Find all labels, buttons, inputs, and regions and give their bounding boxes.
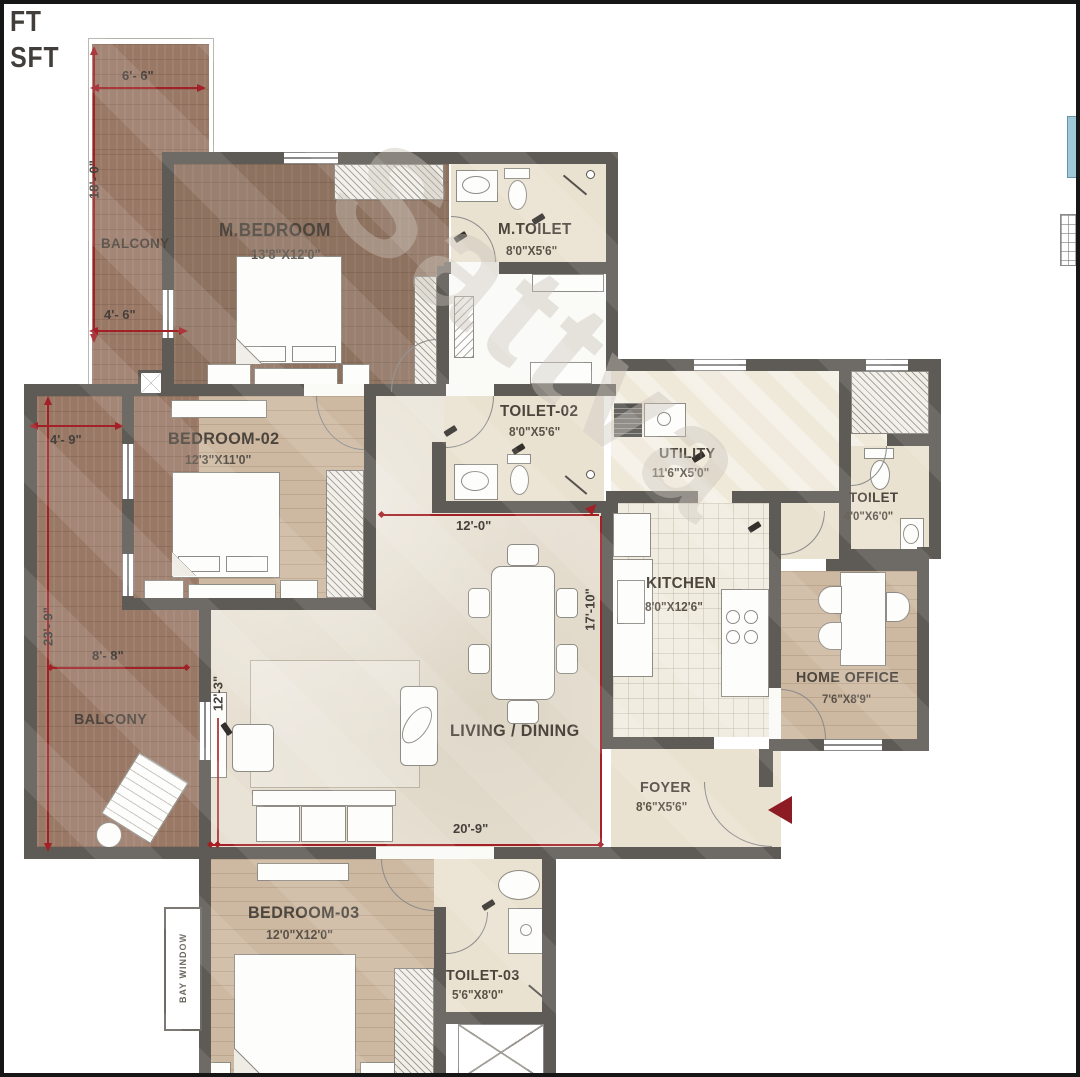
desk [840,572,886,666]
wall [929,359,941,559]
dining-chair [556,644,578,674]
nightstand [209,1062,231,1077]
hob-burner [744,630,758,644]
wall [732,491,839,503]
door-opening [446,384,494,396]
wall [122,598,376,610]
kitchen-sink [617,580,645,624]
room-label-home-office: HOME OFFICE [796,669,899,686]
room-label-balcony-left: BALCONY [74,711,147,728]
wall [434,907,446,1021]
dresser [171,400,267,418]
wc-bowl [508,180,527,210]
room-size-kitchen: 8'0"X12'6" [645,600,703,614]
room-size-home-office: 7'6"X8'9" [822,692,871,706]
dim-arrow [44,396,52,405]
door-opening [304,384,364,396]
window [122,444,134,499]
room-label-m-bedroom: M.BEDROOM [219,220,331,241]
dim-label: 4'- 9" [50,432,82,447]
dim-label: 12'-3" [211,666,226,722]
area-text-line1: FT [10,6,42,39]
room-label-foyer: FOYER [640,779,691,796]
wall [769,503,781,688]
wardrobe [334,164,444,200]
sliding-door [199,702,211,760]
sofa-back [252,790,396,806]
wall [542,859,556,1024]
wall [839,434,851,446]
dim-arrow [115,422,124,430]
dim-line [600,516,602,845]
wall [917,559,929,751]
room-size-bedroom-03: 12'0"X12'0" [266,927,333,942]
blanket-fold [234,1048,260,1074]
dim-label: 17'-10" [583,580,598,640]
area-text: FT 8 SFT [4,4,134,96]
dining-chair [468,588,490,618]
wall [432,442,446,501]
room-label-balcony-top: BALCONY [101,235,169,251]
blanket-fold [236,338,262,364]
dim-label: 12'-0" [456,518,491,533]
room-size-toilet: 4'0"X6'0" [844,509,893,523]
room-label-m-toilet: M.TOILET [498,221,572,239]
wall [364,396,376,598]
sofa-seat [301,806,346,842]
wall [601,513,613,749]
closet [454,296,474,358]
room-label-toilet-02: TOILET-02 [500,403,578,421]
keyplan-fragment-grid [1060,214,1080,266]
dim-line [52,667,186,669]
dim-arrow [197,84,206,92]
dim-arrow [44,843,52,852]
shower-drain [520,924,532,936]
door-opening [376,847,494,859]
dim-label: 23'- 9" [41,597,56,657]
sink-bowl [657,412,671,426]
wall [826,559,929,571]
room-label-utility: UTILITY [659,445,715,462]
dining-chair [556,588,578,618]
keyplan-fragment-blue [1067,116,1080,178]
dining-table [491,566,555,700]
chair [818,622,842,650]
window [284,152,338,164]
room-size-bedroom-02: 12'3"X11'0" [185,452,251,467]
washbasin-bowl [498,870,540,900]
window [122,554,134,596]
dim-label: 4'- 6" [104,307,136,322]
wall [162,152,618,164]
cabinet [530,362,592,384]
dining-chair [507,544,539,566]
dresser [257,863,349,881]
wall [606,491,698,503]
dim-line [96,330,180,332]
shaft [458,1024,544,1077]
room-label-toilet: TOILET [849,489,898,505]
dim-arrow [179,327,188,335]
sofa-seat [347,806,393,842]
door-opening [769,688,781,739]
bay-window: BAY WINDOW [164,907,202,1031]
kitchen-counter [721,589,769,697]
hob-burner [726,610,740,624]
chair [818,586,842,614]
armchair [232,724,274,772]
window [866,359,908,371]
room-size-m-toilet: 8'0"X5'6" [506,244,557,258]
hob-burner [744,610,758,624]
wall [544,1024,556,1077]
shower-icon [586,170,595,179]
cabinet [532,274,604,292]
room-size-utility: 11'6"X5'0" [652,466,709,480]
rug [250,660,420,788]
washbasin-bowl [462,176,490,194]
dim-label: 18'- 0" [87,150,102,210]
dim-arrow [89,327,98,335]
washbasin-bowl [461,471,489,491]
bay-window-label: BAY WINDOW [178,922,188,1014]
wall [162,164,174,396]
dim-arrow [90,334,98,343]
shower-icon [586,470,595,479]
dim-label: 8'- 8" [92,648,124,663]
wall [437,266,449,396]
door-opening [451,262,499,274]
wall [599,847,781,859]
window [824,739,882,751]
wall [434,1012,446,1077]
blanket-fold [172,552,196,576]
drain-grate [614,403,642,437]
dining-chair [468,644,490,674]
room-label-toilet-03: TOILET-03 [446,967,520,984]
room-size-foyer: 8'6"X5'6" [636,800,687,814]
dim-line [211,844,601,846]
floor-plan: BAY WINDOW [0,0,1080,1077]
wc-tank [504,168,530,179]
area-text-line2: 8 SFT [4,42,59,75]
wall [446,1012,544,1024]
dim-arrow [29,422,38,430]
room-size-toilet-03: 5'6"X8'0" [452,988,503,1002]
wardrobe [394,968,434,1077]
wc-bowl [510,465,529,495]
room-label-bedroom-02: BEDROOM-02 [168,429,279,449]
window [694,359,746,371]
sofa-seat [256,806,300,842]
dim-label: 20'-9" [453,821,488,836]
wall [24,396,37,859]
room-label-bedroom-03: BEDROOM-03 [248,903,359,923]
floor-balcony-top-lower [92,154,164,390]
room-label-kitchen: KITCHEN [646,575,716,593]
room-label-living-dining: LIVING / DINING [450,721,580,741]
wall [24,847,616,859]
wash-counter [851,371,929,434]
dim-line [381,514,599,516]
pillow [226,556,268,572]
wc-tank [507,454,531,464]
wall [887,434,929,446]
entry-arrow-icon [768,796,792,824]
room-size-m-bedroom: 13'8"X12'0" [251,247,321,262]
pillow [292,346,336,362]
room-size-toilet-02: 8'0"X5'6" [509,425,560,439]
hob-burner [726,630,740,644]
washbasin-bowl [903,524,919,544]
refrigerator [613,513,651,557]
wall [606,737,714,749]
side-table [96,822,122,848]
wardrobe [326,470,364,598]
dim-line [217,718,219,845]
column [138,370,164,396]
